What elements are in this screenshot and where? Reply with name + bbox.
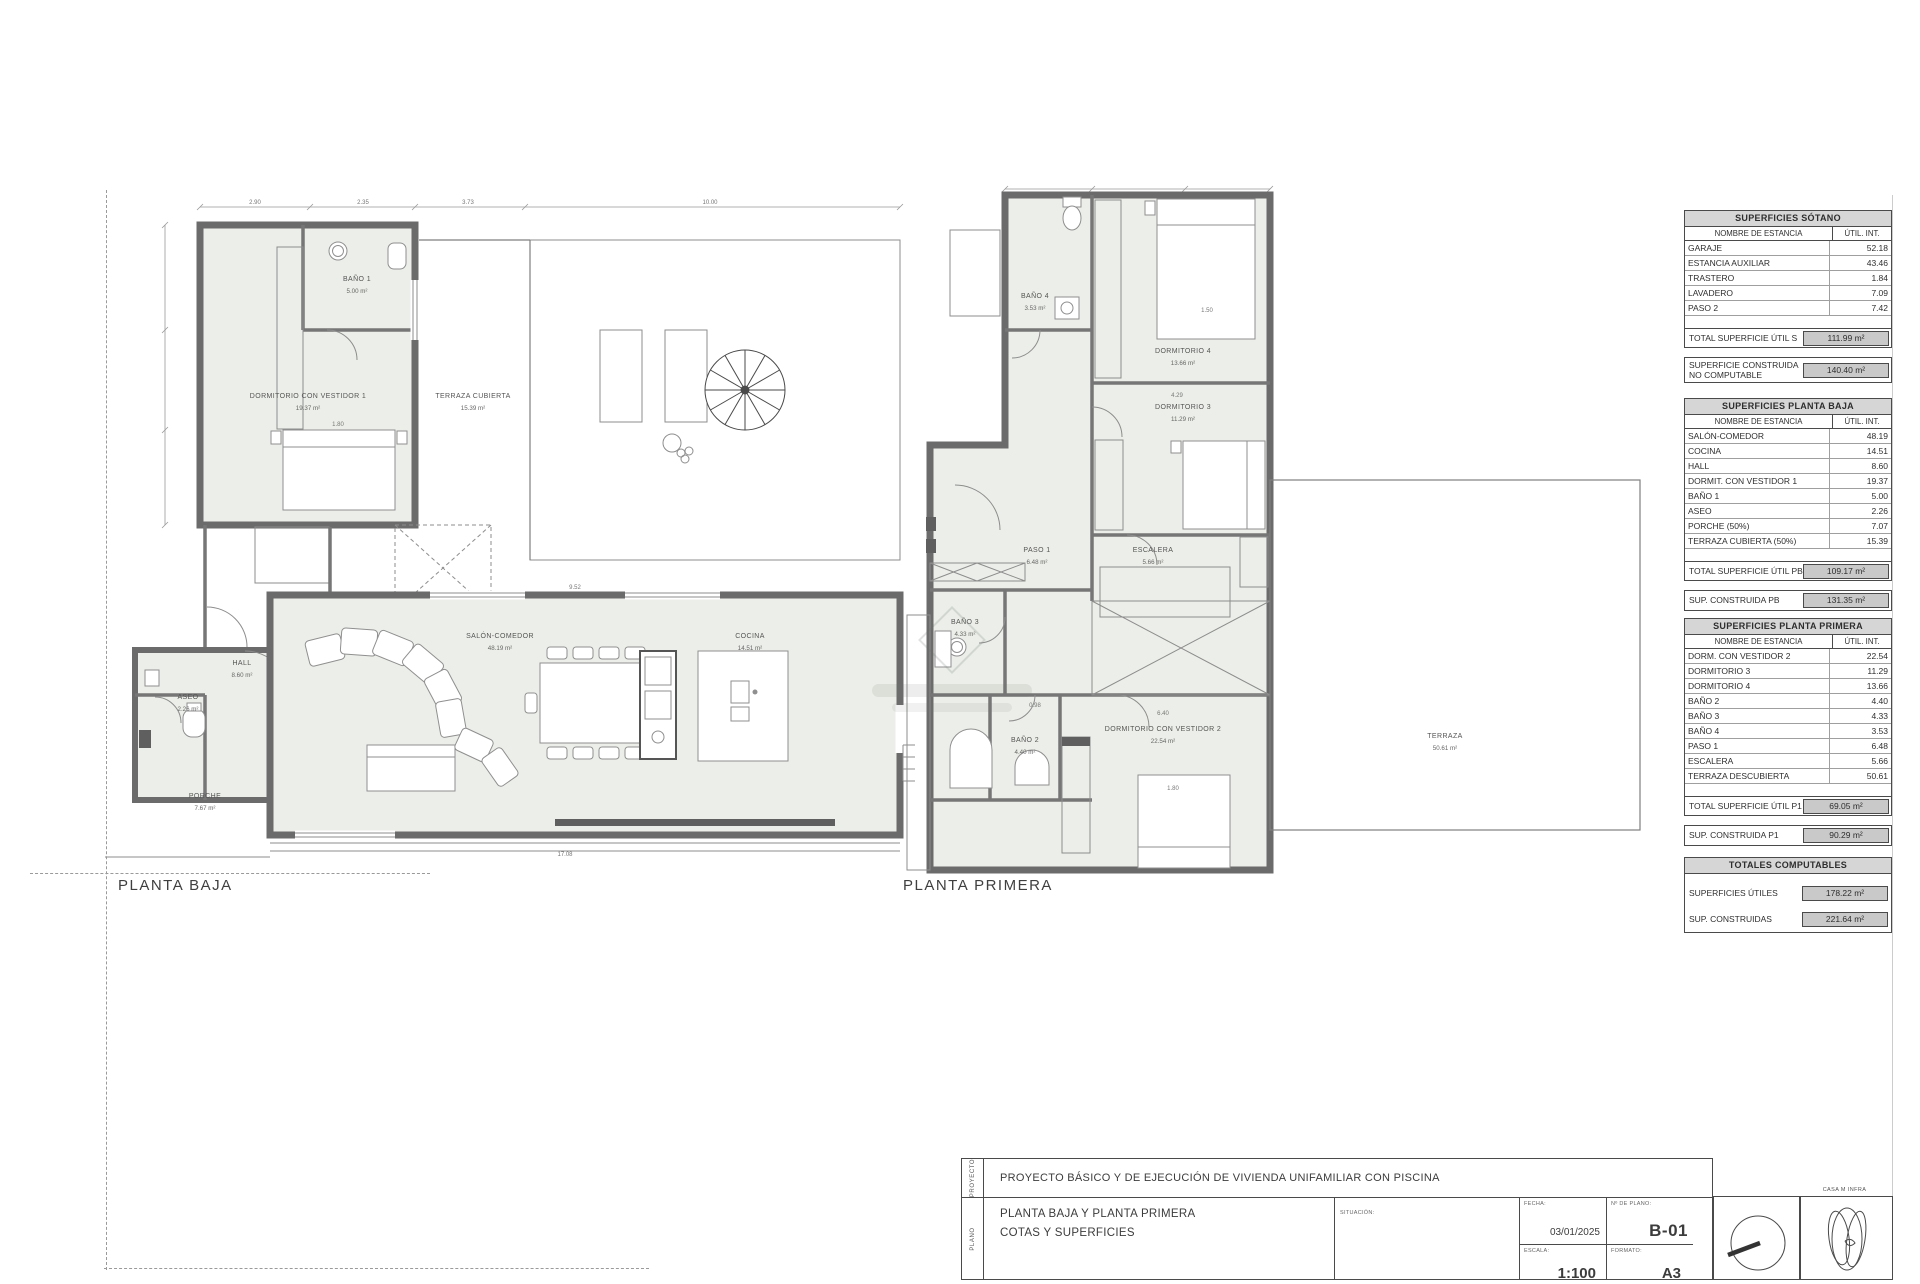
fecha-value: 03/01/2025 (1550, 1227, 1600, 1238)
room-area: 2.26 m² (178, 706, 199, 713)
table-row: TERRAZA CUBIERTA (50%)15.39 (1685, 534, 1891, 549)
table-row: BAÑO 15.00 (1685, 489, 1891, 504)
spiral-stair (705, 350, 785, 430)
table-row: SALÓN-COMEDOR48.19 (1685, 429, 1891, 444)
room-area: 4.33 m² (955, 631, 976, 638)
table-row: COCINA14.51 (1685, 444, 1891, 459)
dim-label: 1.80 (332, 422, 344, 428)
room-area: 50.61 m² (1433, 745, 1457, 752)
room-label: DORMITORIO CON VESTIDOR 1 (250, 393, 366, 400)
room-area: 5.66 m² (1143, 559, 1164, 566)
dim-label: 17.08 (557, 852, 573, 858)
col-header-value: ÚTIL. INT. (1832, 635, 1891, 648)
room-area: 6.48 m² (1027, 559, 1048, 566)
table-row: ESCALERA5.66 (1685, 754, 1891, 769)
room-label: BAÑO 2 (1011, 735, 1039, 744)
title-block: PROYECTO PROYECTO BÁSICO Y DE EJECUCIÓN … (961, 1158, 1713, 1280)
planta-primera-caption: PLANTA PRIMERA (903, 877, 1053, 894)
situacion-cell: SITUACIÓN: (1335, 1198, 1520, 1280)
stamp-caption: CASA M INFRA (1797, 1187, 1892, 1193)
col-header-name: NOMBRE DE ESTANCIA (1685, 415, 1832, 428)
built-value-box: 90.29 m² (1803, 828, 1889, 843)
north-stamp-box (1713, 1196, 1800, 1280)
table-row: BAÑO 24.40 (1685, 694, 1891, 709)
total-value-box: 111.99 m² (1803, 331, 1889, 346)
door-arc (207, 607, 247, 647)
table-row: PASO 27.42 (1685, 301, 1891, 316)
table-row: TERRAZA DESCUBIERTA50.61 (1685, 769, 1891, 784)
table-row: DORMITORIO 311.29 (1685, 664, 1891, 679)
room-label: DORMITORIO 3 (1155, 404, 1211, 411)
kitchen-units (640, 651, 788, 761)
dim-label: 4.29 (1171, 393, 1183, 399)
signature-stamp-box (1800, 1196, 1893, 1280)
dim-label: 0.98 (1029, 703, 1041, 709)
fecha-cell: FECHA: 03/01/2025 (1520, 1198, 1607, 1244)
col-header-name: NOMBRE DE ESTANCIA (1685, 227, 1832, 240)
room-label: COCINA (735, 633, 765, 640)
col-header-value: ÚTIL. INT. (1832, 227, 1891, 240)
plan-title: PLANTA BAJA Y PLANTA PRIMERA COTAS Y SUP… (984, 1198, 1335, 1280)
total-value-box: 221.64 m² (1802, 912, 1888, 927)
table-row: TRASTERO1.84 (1685, 271, 1891, 286)
total-value-box: 109.17 m² (1803, 564, 1889, 579)
sheet-right-edge (1892, 195, 1893, 1280)
north-arrow-icon (1714, 1197, 1799, 1279)
dim-label: 9.52 (569, 585, 581, 591)
terraza-area: TERRAZA 50.61 m² (1270, 480, 1640, 830)
room-label: DORMITORIO 4 (1155, 348, 1211, 355)
table-row: ASEO2.26 (1685, 504, 1891, 519)
built-surface-row: SUP. CONSTRUIDA PB 131.35 m² (1684, 590, 1892, 611)
terraza-cubierta: TERRAZA CUBIERTA 15.39 m² (419, 240, 530, 560)
dimension-chain-top: 2.90 2.35 3.73 10.00 (197, 200, 903, 210)
table-total-row: TOTAL SUPERFICIE ÚTIL S 111.99 m² (1685, 329, 1891, 347)
room-area: 48.19 m² (488, 645, 512, 652)
room-label: BAÑO 1 (343, 274, 371, 283)
room-label: PASO 1 (1023, 547, 1050, 554)
dim-label: 2.90 (249, 200, 261, 206)
planta-baja-caption: PLANTA BAJA (118, 877, 233, 894)
built-surface-row: SUPERFICIE CONSTRUIDA NO COMPUTABLE 140.… (1684, 357, 1892, 383)
room-area: 15.39 m² (461, 405, 485, 412)
room-area: 11.29 m² (1171, 416, 1195, 423)
dim-label: 1.80 (1167, 786, 1179, 792)
project-title: PROYECTO BÁSICO Y DE EJECUCIÓN DE VIVIEN… (984, 1159, 1712, 1197)
table-row: GARAJE52.18 (1685, 241, 1891, 256)
plano-num-value: B-01 (1649, 1221, 1688, 1241)
dormitorio1-block: 1.80 BAÑO 1 5.00 m² DORMITORIO CON VESTI… (200, 225, 420, 525)
built-surface-row: SUP. CONSTRUIDA P1 90.29 m² (1684, 825, 1892, 846)
room-label: BAÑO 3 (951, 617, 979, 626)
formato-cell: FORMATO: A3 (1607, 1245, 1693, 1280)
room-area: 7.67 m² (195, 805, 216, 812)
signature-scribble-icon (1801, 1197, 1892, 1279)
planta-primera-drawing: TERRAZA 50.61 m² BAÑO 4 3.53 m² DORMITOR… (895, 185, 1665, 915)
col-header-name: NOMBRE DE ESTANCIA (1685, 635, 1832, 648)
living-block: SALÓN-COMEDOR 48.19 m² COCINA 14.51 m² 9… (270, 585, 905, 858)
room-label: BAÑO 4 (1021, 291, 1049, 300)
num-plano-cell: Nº DE PLANO: B-01 (1607, 1198, 1693, 1244)
table-title: SUPERFICIES PLANTA PRIMERA (1685, 619, 1891, 635)
plant-sketch (677, 447, 693, 463)
room-area: 4.40 m² (1015, 749, 1036, 756)
room-area: 5.00 m² (347, 288, 368, 295)
hall-aseo-block: HALL 8.60 m² ASEO 2.26 m² (135, 607, 289, 800)
room-area: 19.37 m² (296, 405, 320, 412)
formato-value: A3 (1662, 1265, 1681, 1282)
dim-label: 3.73 (462, 200, 474, 206)
table-row: DORMITORIO 413.66 (1685, 679, 1891, 694)
table-superficies-sotano: SUPERFICIES SÓTANO NOMBRE DE ESTANCIA ÚT… (1684, 210, 1892, 383)
dim-label: 10.00 (702, 200, 718, 206)
total-value-box: 178.22 m² (1802, 886, 1888, 901)
room-label: ASEO (177, 694, 198, 701)
table-superficies-planta-primera: SUPERFICIES PLANTA PRIMERA NOMBRE DE EST… (1684, 618, 1892, 846)
built-value-box: 131.35 m² (1803, 593, 1889, 608)
dimension-chain-top (1002, 186, 1273, 192)
table-title: SUPERFICIES SÓTANO (1685, 211, 1891, 227)
dim-label: 2.35 (357, 200, 369, 206)
table-totales-computables: TOTALES COMPUTABLES SUPERFICIES ÚTILES 1… (1684, 857, 1892, 933)
room-area: 8.60 m² (232, 672, 253, 679)
dim-label: 1.50 (1201, 308, 1213, 314)
table-total-row: TOTAL SUPERFICIE ÚTIL P1 69.05 m² (1685, 797, 1891, 815)
table-row: BAÑO 43.53 (1685, 724, 1891, 739)
room-area: 13.66 m² (1171, 360, 1195, 367)
dimension-chain-left (162, 222, 168, 528)
escala-value: 1:100 (1558, 1265, 1596, 1282)
table-row: LAVADERO7.09 (1685, 286, 1891, 301)
stamp-area (1713, 1196, 1893, 1280)
exterior-stair (950, 230, 1000, 316)
table-row: HALL8.60 (1685, 459, 1891, 474)
planta-baja-drawing: 2.90 2.35 3.73 10.00 (95, 185, 915, 1275)
room-label: TERRAZA (1427, 733, 1462, 740)
total-value-box: 69.05 m² (1803, 799, 1889, 814)
table-row: PORCHE (50%)7.07 (1685, 519, 1891, 534)
plano-vertical-label: PLANO (962, 1198, 984, 1280)
table-total-row: TOTAL SUPERFICIE ÚTIL PB 109.17 m² (1685, 562, 1891, 580)
table-row: SUPERFICIES ÚTILES 178.22 m² (1685, 880, 1891, 906)
table-title: SUPERFICIES PLANTA BAJA (1685, 399, 1891, 415)
room-label: DORMITORIO CON VESTIDOR 2 (1105, 726, 1221, 733)
table-superficies-planta-baja: SUPERFICIES PLANTA BAJA NOMBRE DE ESTANC… (1684, 398, 1892, 611)
table-row: DORM. CON VESTIDOR 222.54 (1685, 649, 1891, 664)
table-row: ESTANCIA AUXILIAR43.46 (1685, 256, 1891, 271)
table-title: TOTALES COMPUTABLES (1685, 858, 1891, 874)
table-row: BAÑO 34.33 (1685, 709, 1891, 724)
escala-cell: ESCALA: 1:100 (1520, 1245, 1607, 1280)
room-area: 3.53 m² (1025, 305, 1046, 312)
room-area: 22.54 m² (1151, 738, 1175, 745)
bed-dormitorio1 (271, 430, 407, 510)
proyecto-vertical-label: PROYECTO (962, 1159, 984, 1197)
room-label: HALL (232, 660, 251, 667)
table-row: PASO 16.48 (1685, 739, 1891, 754)
room-label: SALÓN-COMEDOR (466, 631, 534, 640)
room-label: PORCHE (189, 793, 221, 800)
dim-label: 6.40 (1157, 711, 1169, 717)
table-row: DORMIT. CON VESTIDOR 119.37 (1685, 474, 1891, 489)
table-row: SUP. CONSTRUIDAS 221.64 m² (1685, 906, 1891, 932)
room-label: TERRAZA CUBIERTA (435, 393, 510, 400)
col-header-value: ÚTIL. INT. (1832, 415, 1891, 428)
built-value-box: 140.40 m² (1803, 363, 1889, 378)
patio-area (530, 240, 900, 560)
room-label: ESCALERA (1133, 547, 1174, 554)
